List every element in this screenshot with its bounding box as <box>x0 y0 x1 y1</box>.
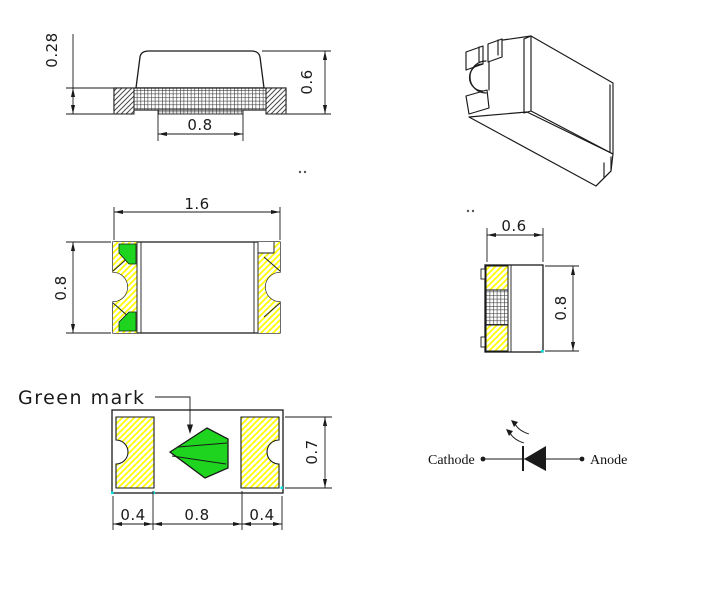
package-outline <box>113 242 280 333</box>
dimension-label: 0.8 <box>187 116 212 134</box>
end-view: 0.6 0.8 <box>481 217 579 353</box>
anode-node-dot <box>580 457 585 462</box>
dimension-end-width: 0.6 <box>487 217 543 262</box>
dimension-label: 0.8 <box>52 275 70 300</box>
dimension-label: 0.4 <box>120 506 145 524</box>
terminal-tab-top <box>481 269 485 279</box>
terminal-tab-bottom <box>481 337 485 347</box>
dimension-length: 1.6 <box>114 195 280 240</box>
cad-tick <box>111 492 114 495</box>
center-substrate-hatch <box>486 290 508 325</box>
dimension-label: 0.8 <box>184 506 209 524</box>
far-terminal-notch <box>596 157 611 186</box>
bottom-pad-hatch <box>486 325 508 351</box>
light-emission-arrows-icon <box>506 420 529 443</box>
anode-label: Anode <box>590 453 627 468</box>
top-pad-hatch <box>486 266 508 290</box>
dimension-bottom-pad-width: 0.8 <box>158 114 243 141</box>
dimension-label: 0.6 <box>298 69 316 94</box>
dimension-label: 1.6 <box>184 195 209 213</box>
dimension-width: 0.8 <box>52 242 111 333</box>
led-diode-icon <box>524 446 546 471</box>
dimension-label: 0.8 <box>552 295 570 320</box>
dimension-end-height: 0.8 <box>545 266 579 351</box>
side-view: 0.28 0.6 0.8 <box>43 32 331 141</box>
green-mark-label: Green mark <box>18 387 146 409</box>
dimension-label: 0.4 <box>249 506 274 524</box>
dimension-pad-chain: 0.4 0.8 0.4 <box>113 491 282 530</box>
bottom-center-pad <box>158 110 243 114</box>
bottom-view: Green mark 0.4 0.8 0.4 0.7 <box>18 387 332 530</box>
isometric-view <box>466 36 613 186</box>
dimension-label: 0.6 <box>501 217 526 235</box>
led-package-drawing: 0.28 0.6 0.8 <box>0 0 707 594</box>
cathode-label: Cathode <box>428 453 475 468</box>
dimension-label: 0.28 <box>43 32 61 67</box>
stray-dot-artifacts <box>299 171 474 212</box>
left-end-cap <box>114 88 134 114</box>
drawing-svg: 0.28 0.6 0.8 <box>0 0 707 594</box>
castellated-terminal <box>466 39 502 114</box>
lens-dome <box>136 51 264 88</box>
dimension-label: 0.7 <box>303 439 321 464</box>
cad-tick <box>281 487 284 490</box>
cad-tick <box>541 350 544 353</box>
right-terminal-hatch <box>258 242 280 333</box>
right-end-cap <box>266 88 286 114</box>
led-schematic: Cathode Anode <box>428 420 627 471</box>
top-view: 1.6 0.8 <box>52 195 280 333</box>
dimension-pad-height: 0.7 <box>285 417 332 488</box>
substrate-strip <box>114 88 286 110</box>
dimension-pad-thickness: 0.28 <box>43 32 114 114</box>
right-terminal-corner-notch <box>258 242 274 253</box>
